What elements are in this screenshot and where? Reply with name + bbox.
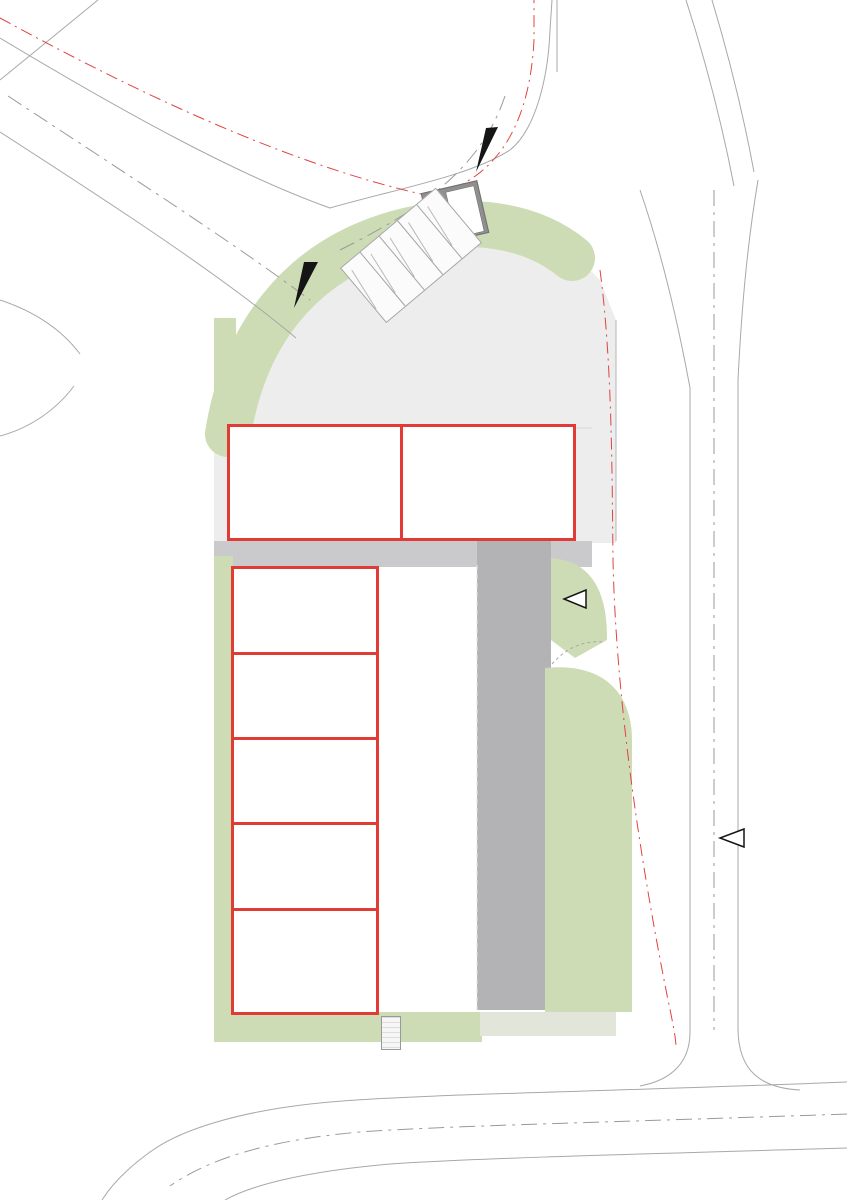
unit-block-01-02 [227,424,576,541]
unit-03 [234,569,376,652]
landscape-bottom-strip-2 [480,1012,616,1036]
site-plan-canvas [0,0,847,1200]
stairs [381,1016,401,1050]
arrow-road-north [476,127,498,172]
site-plan-base-drawing [0,0,847,1200]
landscape-right-upper [551,558,607,658]
unit-04 [234,652,376,737]
unit-01 [230,427,400,538]
unit-05 [234,737,376,822]
unit-06 [234,822,376,908]
unit-07 [234,908,376,1012]
landscape-right-lower [545,667,632,1012]
arrow-view-far-east [720,829,744,847]
landscape-bottom-strip [214,1012,482,1042]
unit-block-03-07 [231,566,379,1015]
unit-02 [400,427,573,538]
